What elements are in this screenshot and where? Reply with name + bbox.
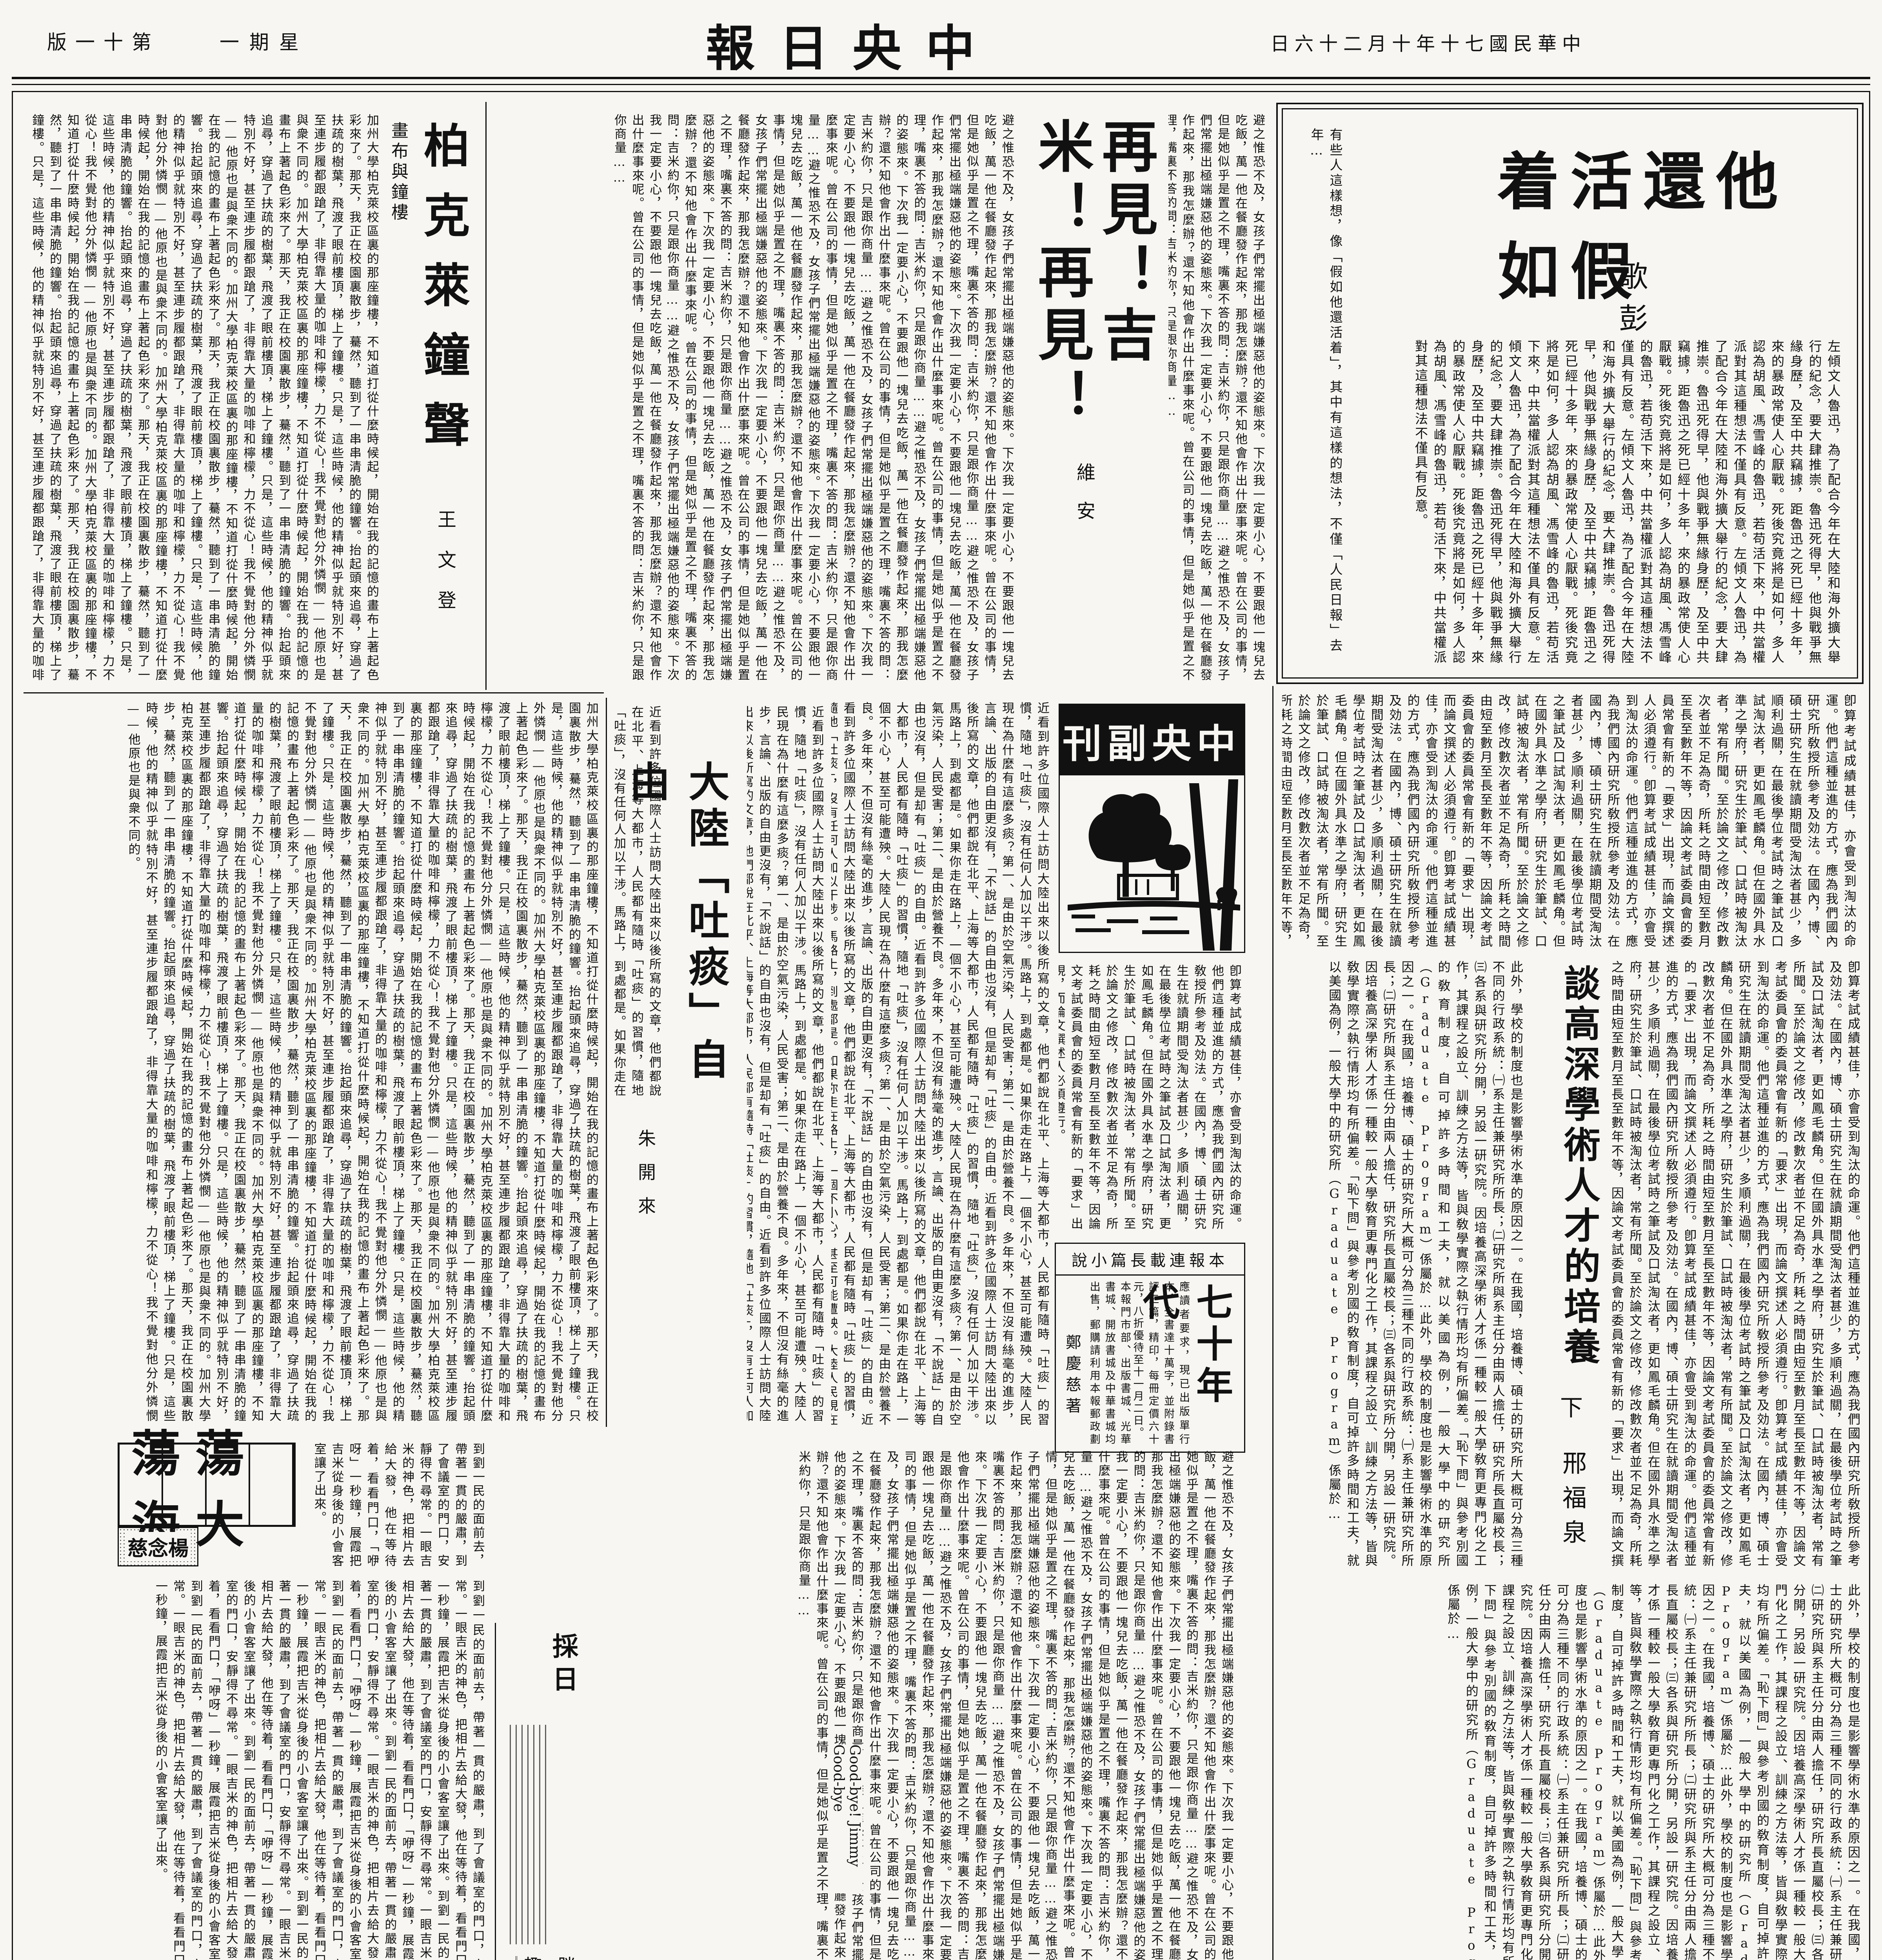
jiaru-article-box: 着活還他如假 歌彭 有些人這樣想，像「假如他還活着」，其中有這樣的想法，不僅「人… [1276, 103, 1864, 684]
tangaoshen-top-columns: 卽算考試成績甚佳，亦會受到淘汰的命運。他們這種並進的方式，應為我們國內研究所敎授… [1282, 694, 1858, 949]
date: 日六十二月十年十七國民華中 [1270, 28, 1870, 52]
supplement-banner: 刊副央中 [1060, 705, 1244, 775]
novel-title: 七十年代 [1195, 1283, 1238, 1448]
quyun-ornament: 趣韻 [516, 1956, 545, 1960]
left-cont-columns: 加州大學柏克萊校區裏的那座鐘樓，不知道打從什麼時候起，開始在我的記憶的畫布上著起… [27, 702, 600, 1423]
zaijian-lead-column: 避之惟恐不及，女孩子們常擺出極端嫌惡他的姿態來。下次我一定要小心，不要跟他一塊兒… [1168, 114, 1266, 682]
dahai-body-columns: 到劉一民的面前去，帶著一貫的嚴肅，到了會議室的門口，安靜得不尋常。一眼吉米的神色… [27, 1580, 486, 1960]
tangaoshen-author: 邢福泉 [1553, 1450, 1590, 1580]
supplement-logo: 刊副央中 [1059, 704, 1245, 953]
divider-poem [495, 1623, 496, 1960]
masthead: 報日央中 [706, 9, 1059, 67]
tutan-headline: 大陸「吐痰」自由 [667, 760, 735, 1113]
berkeley-subtitle: 畫布與鐘樓 [386, 122, 411, 290]
dahai-author: 慈念楊 [125, 1532, 191, 1561]
tangaoshen-headline: 談高深學術人才的培養 [1535, 964, 1606, 1380]
poem-lines [510, 1725, 547, 1944]
berkeley-author: 王文登 [427, 510, 459, 674]
tutan-author: 朱開來 [627, 1129, 659, 1254]
divider-tutan-left [606, 698, 607, 1427]
dahai-title-box: 蕩蕩海大 [118, 1443, 296, 1527]
novel-ad-header: 說小篇長載連報本 [1056, 1244, 1244, 1276]
poem-title: 採日 [547, 1633, 582, 1711]
berkeley-body-column: 加州大學柏克萊校區裏的那座鐘樓，不知道打從什麼時候起，開始在我的記憶的畫布上著起… [27, 114, 380, 682]
tangaoshen-part: 下 [1559, 1396, 1586, 1427]
jiaru-body-column: 左傾文人魯迅，為了配合今年在大陸和海外擴大舉行的紀念，要大肆推崇。魯迅死得早，他… [1352, 339, 1842, 665]
rule-left-mid [24, 692, 604, 693]
novel-ad-body2: 本報門市部、出版書城、光華書城、開放書城及中華書城均出售，郵購請利用本報郵政劃撥… [1085, 1281, 1132, 1446]
supplement-title: 刊副央中 [1063, 712, 1241, 769]
middle-cont-columns: 近看到許多位國際人士訪問大陸出來以後所寫的文章，他們都說在北平、上海等大都市，人… [831, 702, 1051, 1427]
weekday: 一期星 [220, 27, 322, 52]
dahai-title: 蕩蕩海大 [120, 1445, 294, 1525]
tangaoshen-right-columns: 卽算考試成績甚佳，亦會受到淘汰的命運。他們這種並進的方式，應為我們國內研究所敎授… [1611, 960, 1862, 1568]
zaijian-cont-columns: 避之惟恐不及，女孩子們常擺出極端嫌惡他的姿態來。下次我一定要小心，不要跟他一塊兒… [608, 1450, 1235, 1960]
tangaoshen-bottom-columns: 此外，學校的制度也是影響學術水準的原因之一。在我國，培養博、碩士的研究所大概可分… [1282, 1584, 1862, 1960]
page-number: 版一十第 [47, 27, 180, 52]
dahai-side-columns: 到劉一民的面前去，帶著一貫的嚴肅，到了會議室的門口，安靜得不尋常。一眼吉米的神色… [302, 1443, 486, 1568]
under-logo-columns: 卽算考試成績甚佳，亦會受到淘汰的命運。他們這種並進的方式，應為我們國內研究所敎授… [1059, 964, 1243, 1231]
jiaru-intro-column: 有些人這樣想，像「假如他還活着」，其中有這樣的想法，不僅「人民日報」去年… [1293, 128, 1344, 653]
zaijian-headline: 再見！吉米！再見！ [1023, 118, 1157, 435]
tutan-tail-column: 近看到許多位國際人士訪問大陸出來以後所寫的文章，他們都說在北平、上海等大都市，人… [612, 706, 663, 1098]
zaijian-lyric: Good-bye! Jimmy Good-bye [831, 1744, 863, 1893]
divider-berkeley-zaijian [485, 102, 487, 690]
jiaru-headline: 着活還他如假 [1497, 132, 1842, 218]
woodcut-illustration [1060, 775, 1244, 951]
tutan-lead-column: 近看到許多位國際人士訪問大陸出來以後所寫的文章，他們都說在北平、上海等大都市，人… [747, 706, 825, 1423]
dahai-author-box: 慈念楊 [118, 1527, 198, 1566]
header-rule-thin [12, 84, 1870, 85]
newspaper-page: 版一十第 一期星 報日央中 日六十二月十年十七國民華中 加州大學柏克萊校區裏的那… [0, 0, 1882, 1960]
novel-ad-header-text: 說小篇長載連報本 [1072, 1248, 1228, 1270]
header-rule-thick [12, 77, 1870, 79]
berkeley-headline: 柏克萊鐘聲 [412, 122, 476, 490]
tangaoshen-left-columns: 此外，學校的制度也是影響學術水準的原因之一。在我國，培養博、碩士的研究所大概可分… [1282, 960, 1525, 1568]
poem-author: 胖丁 [551, 1956, 578, 1960]
novel-ad-box: 說小篇長載連報本 七十年代 應讀者要求，現已出版單行本，全書達十萬字，並附錄書評… [1055, 1243, 1245, 1453]
divider-right-main [1272, 686, 1273, 1960]
zaijian-author: 維安 [1066, 463, 1098, 564]
novel-author: 鄭慶慈著 [1061, 1334, 1083, 1444]
zaijian-body-column: 避之惟恐不及，女孩子們常擺出極端嫌惡他的姿態來。下次我一定要小心，不要跟他一塊兒… [494, 114, 1015, 682]
jiaru-author: 歌彭 [1619, 253, 1748, 296]
